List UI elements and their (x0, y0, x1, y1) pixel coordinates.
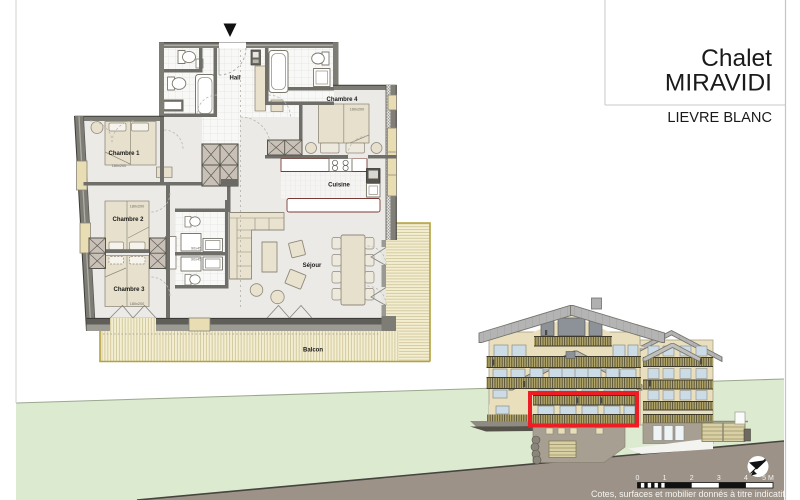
svg-text:Chalet: Chalet (701, 45, 772, 72)
svg-text:LIEVRE BLANC: LIEVRE BLANC (667, 110, 772, 126)
svg-text:Balcon: Balcon (303, 348, 323, 354)
svg-text:0: 0 (636, 475, 640, 482)
svg-text:5 M: 5 M (762, 475, 774, 482)
svg-text:180x200: 180x200 (112, 164, 127, 168)
svg-text:Chambre 3: Chambre 3 (113, 287, 145, 293)
svg-text:90x45: 90x45 (191, 258, 201, 262)
svg-text:Séjour: Séjour (303, 263, 322, 269)
svg-text:Chambre 2: Chambre 2 (112, 217, 144, 223)
svg-text:180x200: 180x200 (130, 302, 145, 306)
svg-text:2: 2 (690, 475, 694, 482)
svg-text:Cotes, surfaces et mobilier do: Cotes, surfaces et mobilier donnés à tit… (591, 489, 787, 499)
svg-text:MIRAVIDI: MIRAVIDI (665, 70, 772, 97)
svg-text:Cuisine: Cuisine (328, 183, 350, 189)
svg-text:160x200: 160x200 (350, 108, 365, 112)
svg-text:4: 4 (744, 475, 748, 482)
svg-text:Chambre 4: Chambre 4 (326, 97, 358, 103)
svg-text:180x200: 180x200 (130, 205, 145, 209)
svg-text:1: 1 (663, 475, 667, 482)
svg-text:90x45: 90x45 (191, 247, 201, 251)
svg-text:Chambre 1: Chambre 1 (108, 151, 140, 157)
svg-text:3: 3 (717, 475, 721, 482)
svg-text:Hall: Hall (229, 76, 240, 82)
